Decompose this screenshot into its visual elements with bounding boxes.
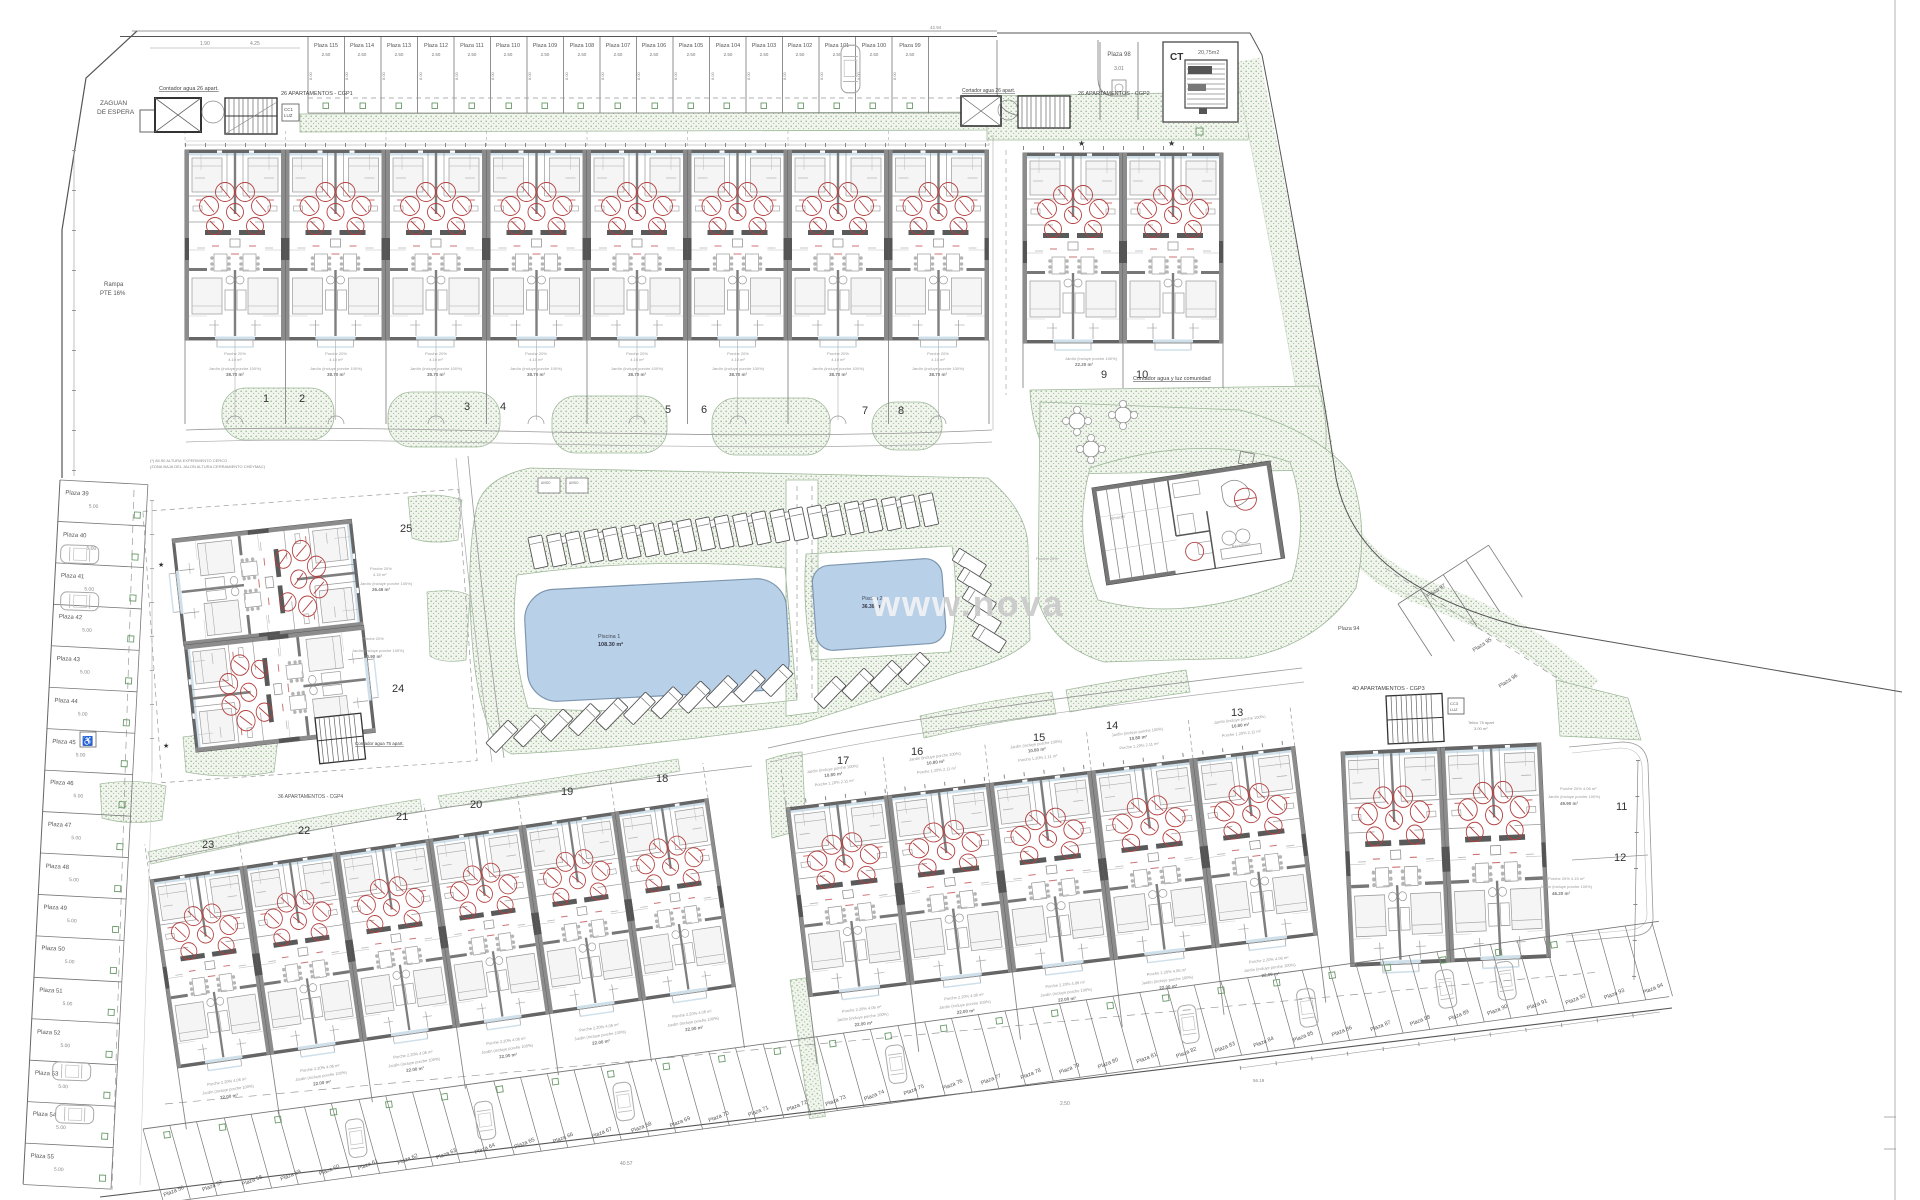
svg-text:2: 2 [299,393,305,405]
svg-text:AVISO: AVISO [569,481,579,485]
svg-text:5.00: 5.00 [78,711,88,718]
svg-text:Jardín (incluye porche 100%): Jardín (incluye porche 100%) [360,581,413,586]
svg-text:1: 1 [263,393,269,405]
svg-text:5.00: 5.00 [80,669,90,676]
svg-text:Plaza 39: Plaza 39 [65,490,89,497]
svg-text:13: 13 [1231,707,1243,719]
svg-text:2.50: 2.50 [358,52,367,57]
svg-text:Cortador agua 26 apart.: Cortador agua 26 apart. [962,88,1015,94]
svg-text:26 APARTAMENTOS - CGP2: 26 APARTAMENTOS - CGP2 [1078,91,1150,97]
svg-text:21: 21 [396,811,408,823]
svg-text:12: 12 [1614,852,1626,864]
svg-text:♿: ♿ [82,735,93,746]
svg-text:8.00: 8.00 [418,71,423,80]
svg-text:26 APARTAMENTOS - CGP1: 26 APARTAMENTOS - CGP1 [281,91,353,97]
svg-text:Jardín (incluye porche 100%): Jardín (incluye porche 100%) [310,366,363,371]
svg-text:38.70 m²: 38.70 m² [226,372,245,377]
svg-text:8.00: 8.00 [673,71,678,80]
svg-text:8.00: 8.00 [636,71,641,80]
svg-text:22: 22 [298,825,310,837]
svg-text:8.00: 8.00 [527,71,532,80]
svg-text:56.19: 56.19 [1253,1078,1265,1083]
svg-text:Jardín (incluye porche 100%): Jardín (incluye porche 100%) [510,366,563,371]
svg-text:Plaza 102: Plaza 102 [788,43,812,49]
svg-text:26.46 m²: 26.46 m² [372,587,391,592]
svg-text:40.57: 40.57 [620,1161,633,1167]
svg-text:38.70 m²: 38.70 m² [628,372,647,377]
svg-text:Plaza 111: Plaza 111 [460,43,484,49]
svg-text:Plaza 99: Plaza 99 [899,43,920,49]
svg-text:Jardín (incluye porche 100%): Jardín (incluye porche 100%) [611,366,664,371]
svg-text:Jardín (incluye porche 100%): Jardín (incluye porche 100%) [1540,884,1593,889]
svg-text:23: 23 [202,839,214,851]
svg-text:2.50: 2.50 [541,52,550,57]
svg-text:Porche 20% 4.06 m²: Porche 20% 4.06 m² [1560,786,1597,791]
svg-text:38.70 m²: 38.70 m² [829,372,848,377]
svg-text:2.50: 2.50 [906,52,915,57]
svg-text:Plaza 110: Plaza 110 [496,43,520,49]
svg-text:5.00: 5.00 [82,627,92,634]
svg-text:Jardín (incluye porche 100%): Jardín (incluye porche 100%) [209,366,262,371]
svg-text:Jardín (incluye porche 100%): Jardín (incluye porche 100%) [812,366,865,371]
svg-text:Contador agua 75 apart.: Contador agua 75 apart. [355,741,404,746]
svg-text:Contador agua 26 apart.: Contador agua 26 apart. [159,86,219,92]
svg-text:Porche 20%: Porche 20% [927,351,949,356]
svg-text:4.10 m²: 4.10 m² [228,357,242,362]
svg-text:2.50: 2.50 [687,52,696,57]
svg-text:★: ★ [158,561,164,569]
svg-text:Jardín (incluye porche 100%): Jardín (incluye porche 100%) [1065,356,1118,361]
svg-text:Plaza 47: Plaza 47 [48,822,72,829]
svg-text:8.00: 8.00 [600,71,605,80]
svg-text:49.90 m²: 49.90 m² [1560,801,1579,806]
svg-text:Porche 20%: Porche 20% [370,566,392,571]
svg-text:8.00: 8.00 [819,71,824,80]
svg-text:Porche 20%: Porche 20% [626,351,648,356]
svg-text:16: 16 [911,746,923,758]
svg-text:15: 15 [1033,732,1045,744]
svg-text:2.50: 2.50 [614,52,623,57]
svg-text:5: 5 [665,404,671,416]
svg-text:3.00 m²: 3.00 m² [1474,726,1488,731]
svg-text:5.00: 5.00 [60,1043,70,1050]
svg-text:8.00: 8.00 [454,71,459,80]
svg-text:42.94: 42.94 [930,25,942,30]
svg-text:5.00: 5.00 [67,918,77,925]
svg-text:Porche 20%: Porche 20% [325,351,347,356]
svg-text:Jardín (incluye porche 100%): Jardín (incluye porche 100%) [1548,794,1601,799]
svg-text:Jardín (incluye porche 100%): Jardín (incluye porche 100%) [712,366,765,371]
svg-text:Plaza 44: Plaza 44 [54,698,78,705]
svg-text:★: ★ [163,742,169,750]
svg-text:5.00: 5.00 [56,1125,66,1132]
svg-text:8.00: 8.00 [564,71,569,80]
svg-text:Plaza 52: Plaza 52 [37,1030,61,1037]
svg-text:4.15 m²: 4.15 m² [373,572,387,577]
svg-text:Plaza 103: Plaza 103 [752,43,776,49]
svg-text:★: ★ [1078,139,1085,148]
svg-text:20: 20 [470,799,482,811]
svg-text:Jardín (incluye porche 100%): Jardín (incluye porche 100%) [410,366,463,371]
svg-text:5.00: 5.00 [88,504,98,511]
svg-text:Plaza 55: Plaza 55 [30,1153,54,1160]
svg-text:ZAGUAN: ZAGUAN [100,100,127,107]
svg-text:Plaza 51: Plaza 51 [39,988,63,995]
svg-text:LUZ: LUZ [1450,707,1458,712]
svg-text:Plaza 42: Plaza 42 [59,614,83,621]
svg-text:Plaza 53: Plaza 53 [35,1071,59,1078]
svg-text:Plaza 105: Plaza 105 [679,43,703,49]
svg-text:38.70 m²: 38.70 m² [327,372,346,377]
svg-text:Plaza 100: Plaza 100 [862,43,886,49]
svg-text:Telico 75 apart: Telico 75 apart [1468,720,1495,725]
svg-text:2.50: 2.50 [1060,1101,1070,1107]
svg-text:Plaza 98: Plaza 98 [1107,52,1131,58]
svg-text:Porche 20%: Porche 20% [727,351,749,356]
svg-text:Plaza 113: Plaza 113 [387,43,411,49]
svg-text:4.10 m²: 4.10 m² [529,357,543,362]
svg-text:22.20 m²: 22.20 m² [1075,362,1094,367]
svg-text:8.00: 8.00 [892,71,897,80]
svg-text:5.00: 5.00 [71,835,81,842]
svg-text:4.10 m²: 4.10 m² [731,357,745,362]
svg-text:4.10 m²: 4.10 m² [931,357,945,362]
svg-text:8.00: 8.00 [381,71,386,80]
svg-text:Contador agua y luz comunidad: Contador agua y luz comunidad [1133,376,1211,382]
svg-text:AVISO: AVISO [541,481,551,485]
svg-text:11: 11 [1616,801,1627,813]
svg-text:2.50: 2.50 [578,52,587,57]
svg-text:8: 8 [898,405,904,417]
svg-text:5.00: 5.00 [69,877,79,884]
svg-text:38.70 m²: 38.70 m² [427,372,446,377]
svg-text:2.50: 2.50 [870,52,879,57]
svg-text:2.50: 2.50 [468,52,477,57]
svg-text:Plaza 107: Plaza 107 [606,43,630,49]
svg-text:PTE 16%: PTE 16% [100,291,126,297]
svg-text:9: 9 [1101,369,1107,381]
svg-text:LUZ: LUZ [284,113,293,118]
svg-text:CC1: CC1 [284,107,293,112]
svg-text:2.50: 2.50 [724,52,733,57]
svg-text:(*) 84.50 ALTURA EXPERIMENTO C: (*) 84.50 ALTURA EXPERIMENTO CERCO [150,458,227,463]
svg-text:2.50: 2.50 [796,52,805,57]
svg-text:Jardín (incluye porche 100%): Jardín (incluye porche 100%) [912,366,965,371]
svg-text:5.00: 5.00 [65,959,75,966]
svg-text:8.00: 8.00 [344,71,349,80]
svg-text:1.90: 1.90 [200,41,210,47]
svg-text:5.00: 5.00 [73,793,83,800]
svg-text:Plaza 106: Plaza 106 [642,43,666,49]
svg-text:Plaza 40: Plaza 40 [63,532,87,539]
svg-text:18: 18 [656,773,668,785]
svg-text:Porche 20%: Porche 20% [827,351,849,356]
svg-text:5.00: 5.00 [62,1001,72,1008]
svg-text:Plaza 46: Plaza 46 [50,780,74,787]
svg-text:Plaza 94: Plaza 94 [1338,626,1359,632]
svg-text:8.00: 8.00 [782,71,787,80]
svg-text:2.50: 2.50 [395,52,404,57]
svg-text:Porche 20%: Porche 20% [425,351,447,356]
svg-text:46.20 m²: 46.20 m² [1552,891,1571,896]
svg-text:Plaza 114: Plaza 114 [350,43,374,49]
svg-text:5.00: 5.00 [75,752,85,759]
svg-text:Plaza 45: Plaza 45 [52,739,76,746]
svg-text:2.50: 2.50 [650,52,659,57]
svg-text:5.00: 5.00 [54,1167,64,1174]
svg-text:2.50: 2.50 [322,52,331,57]
svg-text:4.25: 4.25 [250,41,260,47]
svg-text:4.10 m²: 4.10 m² [831,357,845,362]
svg-text:Porche 20% 4.15 m²: Porche 20% 4.15 m² [1548,876,1585,881]
svg-text:4.10 m²: 4.10 m² [630,357,644,362]
svg-text:Plaza 50: Plaza 50 [41,946,65,953]
svg-text:Plaza 104: Plaza 104 [716,43,740,49]
svg-text:8.00: 8.00 [746,71,751,80]
svg-text:2.50: 2.50 [833,52,842,57]
svg-text:Porche 20%: Porche 20% [1036,556,1058,561]
svg-text:5.00: 5.00 [58,1084,68,1091]
svg-text:38.70 m²: 38.70 m² [929,372,948,377]
svg-text:36 APARTAMENTOS - CGP4: 36 APARTAMENTOS - CGP4 [278,794,343,800]
svg-text:8.00: 8.00 [710,71,715,80]
svg-text:20,75m2: 20,75m2 [1198,50,1219,56]
svg-text:30.90 m²: 30.90 m² [364,654,383,659]
svg-text:Jardín (incluye porche 100%): Jardín (incluye porche 100%) [352,648,405,653]
svg-text:Plaza 48: Plaza 48 [46,864,70,871]
svg-text:Plaza 41: Plaza 41 [61,573,85,580]
svg-text:25: 25 [400,523,412,535]
svg-text:38.70 m²: 38.70 m² [527,372,546,377]
svg-text:Piscina 1: Piscina 1 [598,634,620,640]
svg-text:2.50: 2.50 [504,52,513,57]
svg-text:CT: CT [1170,52,1183,63]
svg-text:8.00: 8.00 [308,71,313,80]
svg-text:6: 6 [701,404,707,416]
svg-text:5.00: 5.00 [84,586,94,593]
svg-text:Porche 20%: Porche 20% [525,351,547,356]
svg-text:108.30 m²: 108.30 m² [598,641,623,648]
svg-text:★: ★ [1168,139,1175,148]
svg-text:2.50: 2.50 [432,52,441,57]
svg-text:7: 7 [862,405,868,417]
svg-text:Plaza 49: Plaza 49 [43,905,67,912]
svg-text:Plaza 109: Plaza 109 [533,43,557,49]
svg-text:2.50: 2.50 [760,52,769,57]
svg-text:4.10 m²: 4.10 m² [329,357,343,362]
svg-text:Plaza 108: Plaza 108 [570,43,594,49]
svg-text:17: 17 [837,755,849,767]
svg-text:38.70 m²: 38.70 m² [729,372,748,377]
svg-text:24: 24 [392,683,404,695]
svg-text:DE ESPERA: DE ESPERA [97,109,135,116]
svg-text:14: 14 [1106,720,1118,732]
svg-text:Plaza 54: Plaza 54 [33,1111,57,1118]
svg-text:Plaza 115: Plaza 115 [314,43,338,49]
svg-text:Rampa: Rampa [104,282,124,288]
svg-text:4: 4 [500,401,506,413]
svg-text:CC3: CC3 [1450,701,1459,706]
svg-text:(ZONA BAJA DEL JALON ALTURA CE: (ZONA BAJA DEL JALON ALTURA CERRAMIENTO … [150,464,266,469]
svg-text:4.10 m²: 4.10 m² [429,357,443,362]
svg-text:Plaza 43: Plaza 43 [56,656,80,663]
svg-text:8.00: 8.00 [490,71,495,80]
svg-text:3: 3 [464,401,470,413]
svg-text:Porche 20%: Porche 20% [224,351,246,356]
svg-text:19: 19 [561,786,573,798]
svg-text:Porche 20%: Porche 20% [362,636,384,641]
svg-text:3.01: 3.01 [1114,66,1124,72]
svg-text:Plaza 112: Plaza 112 [424,43,448,49]
svg-text:4D APARTAMENTOS - CGP3: 4D APARTAMENTOS - CGP3 [1352,686,1425,692]
